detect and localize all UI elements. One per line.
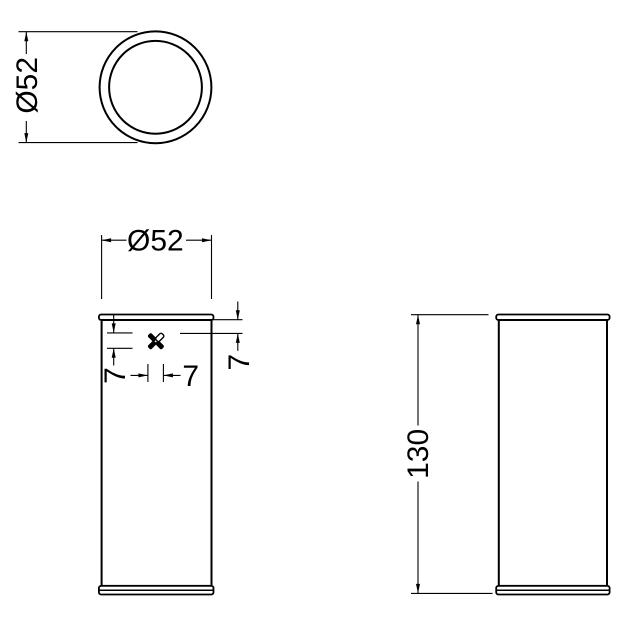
svg-text:7: 7 — [99, 367, 132, 384]
svg-text:7: 7 — [223, 354, 256, 371]
svg-text:7: 7 — [182, 360, 199, 393]
svg-text:Ø52: Ø52 — [127, 225, 184, 258]
svg-text:130: 130 — [402, 429, 435, 479]
svg-text:Ø52: Ø52 — [11, 57, 44, 114]
